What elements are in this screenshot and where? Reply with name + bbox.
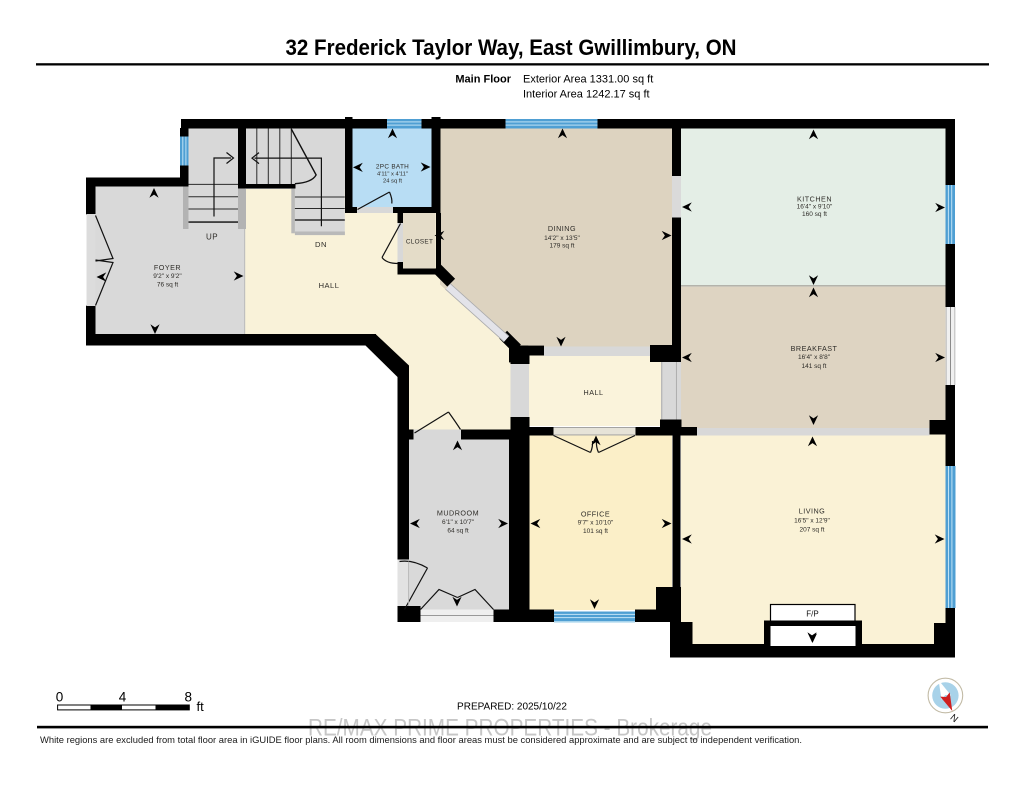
svg-text:UP: UP [206,232,218,241]
svg-text:MUDROOM: MUDROOM [437,509,479,518]
svg-text:6'1" x 10'7": 6'1" x 10'7" [442,519,475,526]
svg-text:CLOSET: CLOSET [406,239,433,246]
svg-text:64 sq ft: 64 sq ft [447,527,469,534]
svg-text:HALL: HALL [319,281,340,290]
svg-text:PREPARED: 2025/10/22: PREPARED: 2025/10/22 [457,702,567,713]
svg-text:16'5" x 12'9": 16'5" x 12'9" [794,517,830,524]
svg-text:DINING: DINING [548,224,576,233]
svg-text:2PC BATH: 2PC BATH [376,164,409,171]
svg-text:DN: DN [315,240,327,249]
svg-text:Exterior Area 1331.00 sq ft: Exterior Area 1331.00 sq ft [523,74,653,86]
svg-text:16'4" x 8'8": 16'4" x 8'8" [798,354,831,361]
svg-text:9'2" x 9'2": 9'2" x 9'2" [153,273,182,280]
svg-text:8: 8 [185,690,193,705]
svg-text:HALL: HALL [584,388,604,397]
svg-text:LIVING: LIVING [799,506,826,515]
svg-text:Interior Area 1242.17 sq ft: Interior Area 1242.17 sq ft [523,89,650,101]
svg-text:32 Frederick Taylor Way, East: 32 Frederick Taylor Way, East Gwillimbur… [286,35,737,60]
svg-text:ft: ft [197,699,205,714]
svg-text:4'11" x 4'11": 4'11" x 4'11" [377,172,408,178]
svg-text:Main Floor: Main Floor [455,74,511,86]
svg-text:24 sq ft: 24 sq ft [383,178,402,184]
svg-text:White regions are excluded fro: White regions are excluded from total fl… [40,735,802,745]
svg-text:BREAKFAST: BREAKFAST [791,344,838,353]
svg-text:KITCHEN: KITCHEN [797,194,832,203]
svg-text:4: 4 [119,690,127,705]
svg-text:179 sq ft: 179 sq ft [550,242,575,249]
svg-text:76 sq ft: 76 sq ft [157,282,179,289]
svg-text:16'4" x 9'10": 16'4" x 9'10" [797,204,833,211]
svg-text:141 sq ft: 141 sq ft [802,363,827,370]
svg-text:101 sq ft: 101 sq ft [583,528,608,535]
svg-text:160 sq ft: 160 sq ft [802,211,827,218]
svg-text:FOYER: FOYER [154,263,181,272]
svg-text:9'7" x 10'10": 9'7" x 10'10" [578,520,614,527]
svg-text:0: 0 [56,690,64,705]
svg-text:14'2" x 13'5": 14'2" x 13'5" [544,235,580,242]
svg-text:F/P: F/P [806,610,818,619]
svg-text:OFFICE: OFFICE [581,509,610,518]
svg-text:207 sq ft: 207 sq ft [800,526,825,533]
